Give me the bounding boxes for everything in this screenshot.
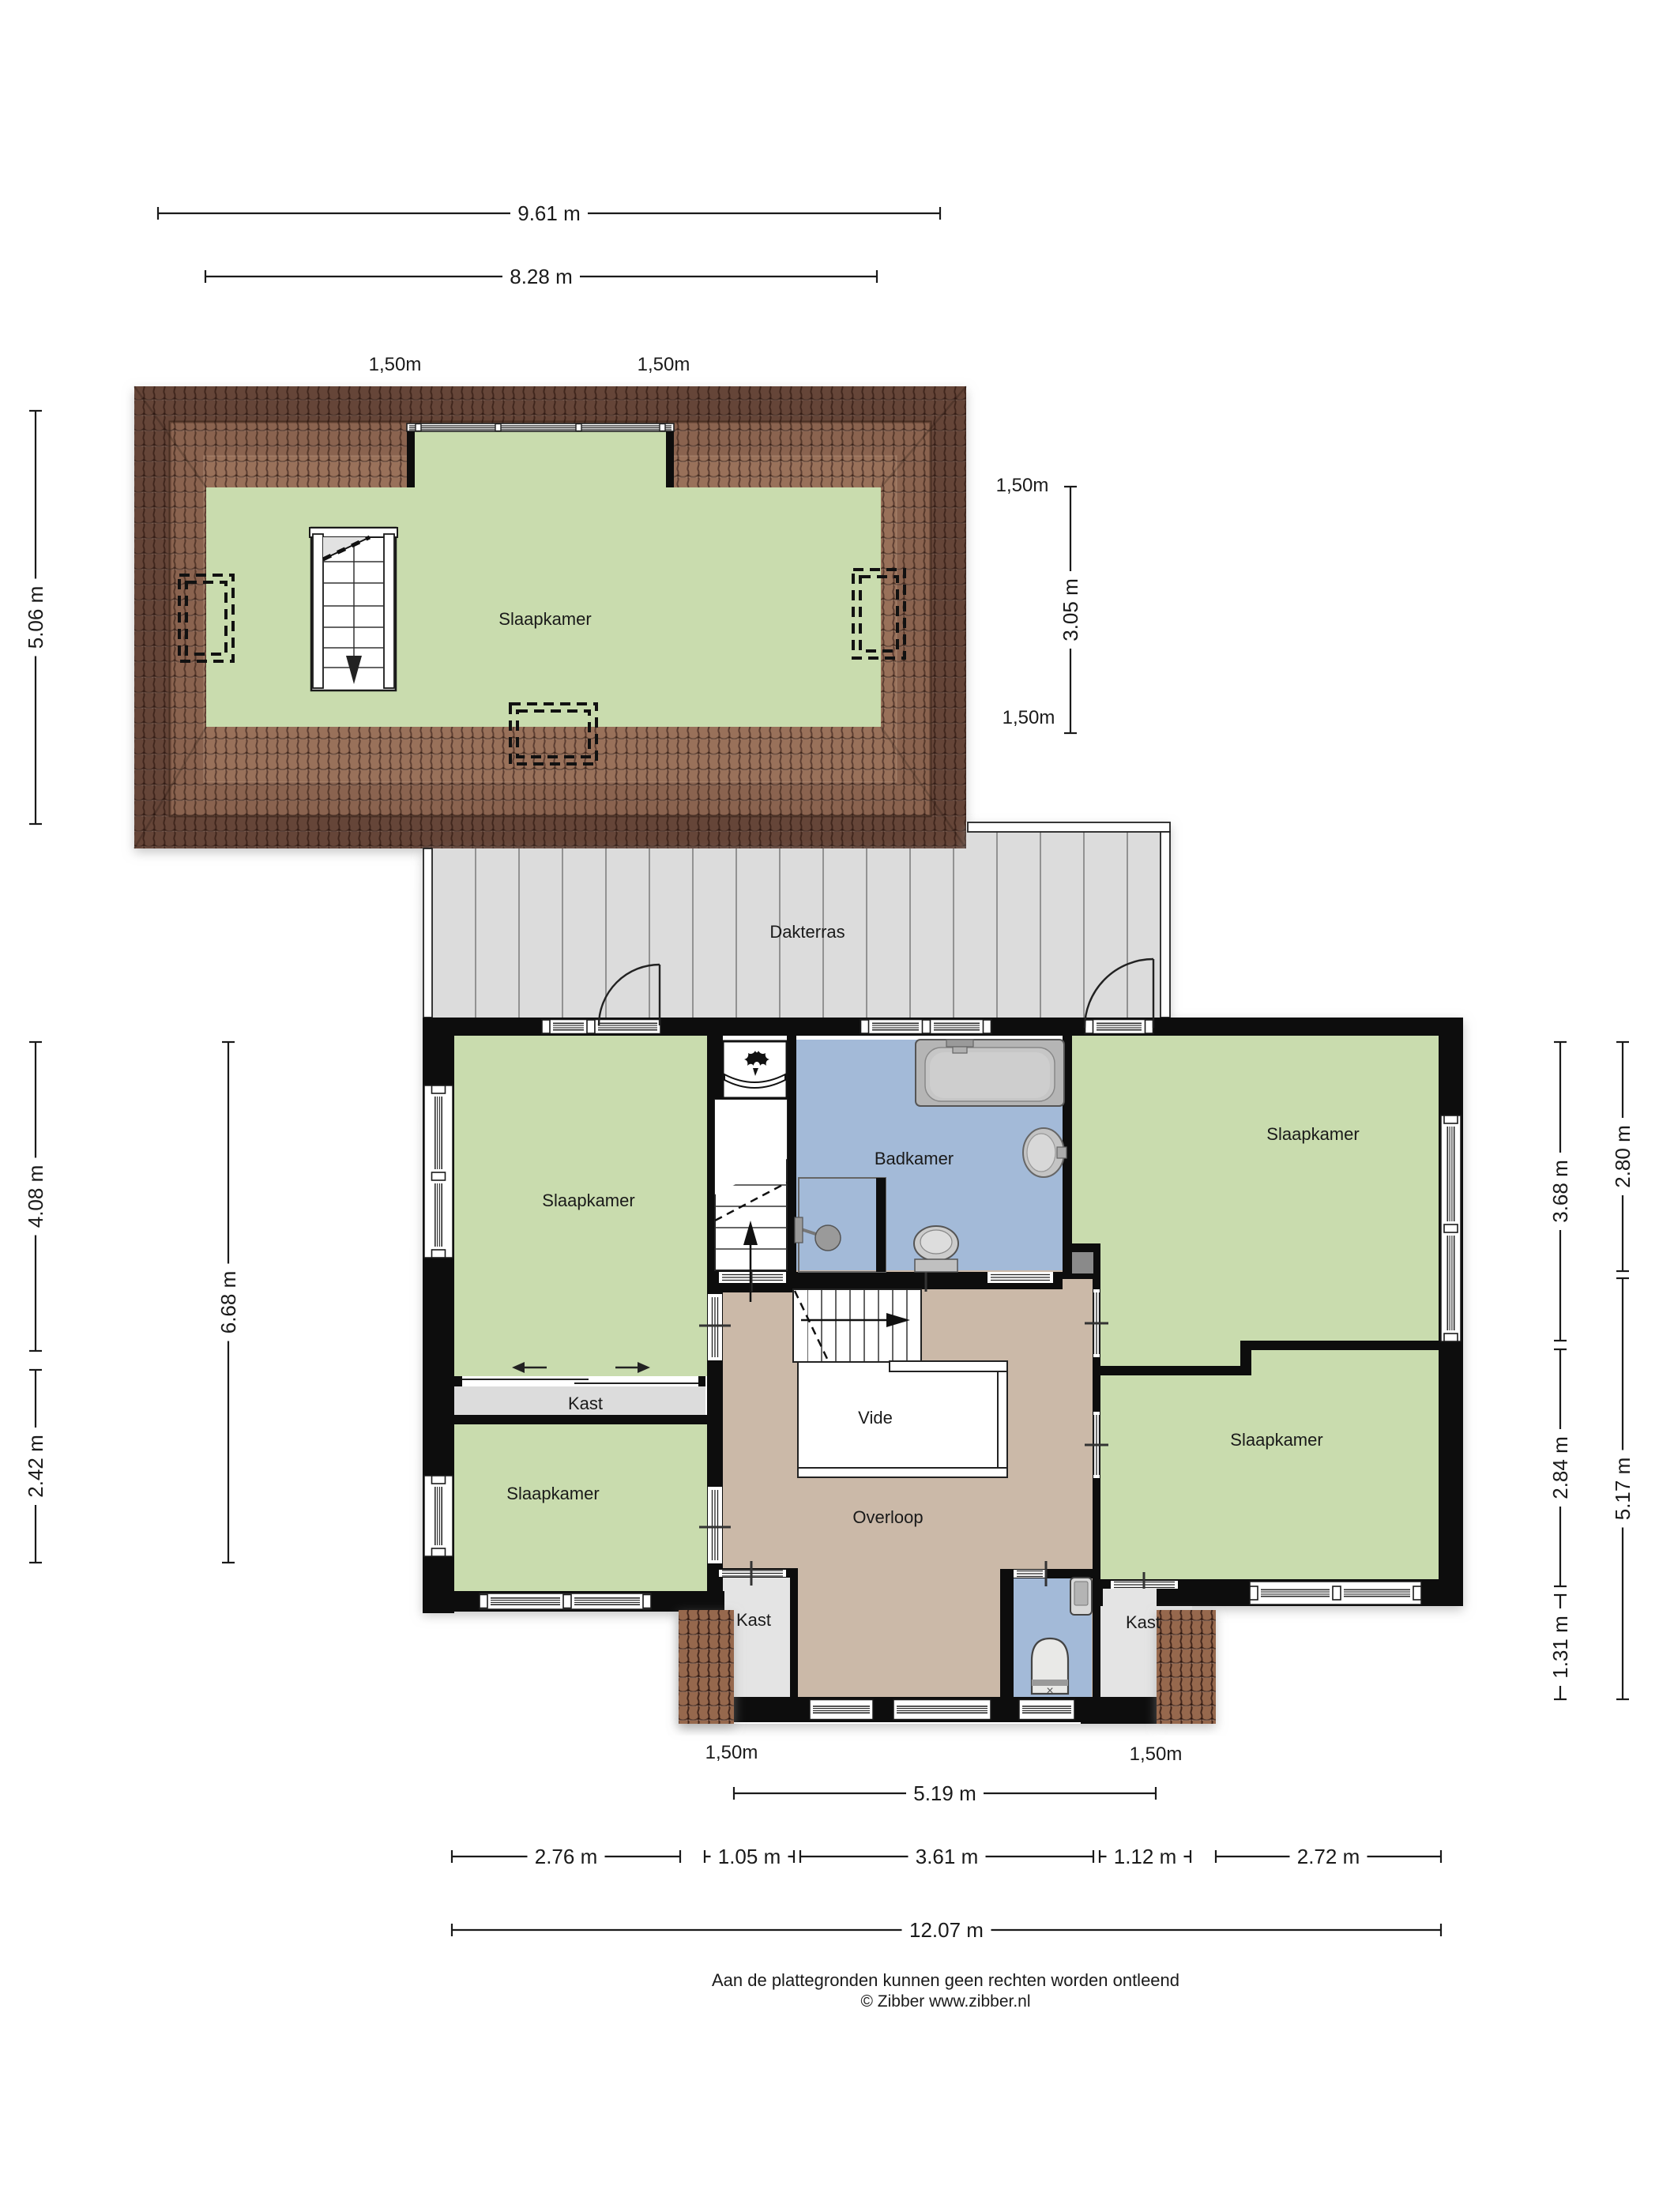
svg-text:Kast: Kast bbox=[1126, 1612, 1161, 1632]
svg-text:3.05 m: 3.05 m bbox=[1059, 578, 1082, 641]
svg-text:2.84 m: 2.84 m bbox=[1548, 1436, 1572, 1499]
svg-text:4.08 m: 4.08 m bbox=[24, 1165, 47, 1228]
svg-text:Slaapkamer: Slaapkamer bbox=[506, 1484, 599, 1503]
svg-text:Kast: Kast bbox=[568, 1394, 603, 1413]
svg-text:1,50m: 1,50m bbox=[638, 354, 690, 375]
svg-text:2.72 m: 2.72 m bbox=[1297, 1845, 1360, 1868]
svg-text:1,50m: 1,50m bbox=[1130, 1744, 1183, 1765]
svg-text:5.17 m: 5.17 m bbox=[1611, 1458, 1635, 1521]
svg-text:1,50m: 1,50m bbox=[369, 354, 422, 375]
svg-text:5.19 m: 5.19 m bbox=[913, 1781, 976, 1805]
svg-text:Overloop: Overloop bbox=[852, 1507, 923, 1527]
svg-text:1,50m: 1,50m bbox=[1003, 707, 1055, 728]
svg-text:1.31 m: 1.31 m bbox=[1548, 1616, 1572, 1679]
svg-text:2.76 m: 2.76 m bbox=[535, 1845, 598, 1868]
svg-text:Slaapkamer: Slaapkamer bbox=[1230, 1430, 1322, 1450]
svg-text:8.28 m: 8.28 m bbox=[510, 265, 573, 288]
svg-text:×: × bbox=[1046, 1684, 1053, 1698]
svg-text:1,50m: 1,50m bbox=[705, 1742, 758, 1763]
svg-text:Aan de plattegronden kunnen ge: Aan de plattegronden kunnen geen rechten… bbox=[712, 1970, 1179, 1990]
svg-text:Slaapkamer: Slaapkamer bbox=[498, 609, 591, 629]
svg-text:9.61 m: 9.61 m bbox=[517, 201, 581, 225]
svg-text:© Zibber www.zibber.nl: © Zibber www.zibber.nl bbox=[860, 1992, 1030, 2011]
svg-text:5.06 m: 5.06 m bbox=[24, 586, 47, 649]
svg-text:2.80 m: 2.80 m bbox=[1611, 1125, 1635, 1188]
svg-text:Slaapkamer: Slaapkamer bbox=[542, 1191, 634, 1210]
svg-text:12.07 m: 12.07 m bbox=[909, 1918, 984, 1942]
svg-text:2.42 m: 2.42 m bbox=[24, 1435, 47, 1498]
svg-text:6.68 m: 6.68 m bbox=[216, 1271, 240, 1334]
svg-text:3.68 m: 3.68 m bbox=[1548, 1160, 1572, 1223]
svg-text:1.12 m: 1.12 m bbox=[1114, 1845, 1177, 1868]
svg-text:Dakterras: Dakterras bbox=[769, 922, 845, 942]
svg-text:1,50m: 1,50m bbox=[996, 475, 1049, 496]
svg-text:Kast: Kast bbox=[736, 1610, 771, 1630]
svg-text:Vide: Vide bbox=[858, 1408, 893, 1428]
svg-text:3.61 m: 3.61 m bbox=[916, 1845, 979, 1868]
svg-text:Slaapkamer: Slaapkamer bbox=[1266, 1124, 1359, 1144]
svg-text:Badkamer: Badkamer bbox=[875, 1149, 954, 1168]
svg-text:1.05 m: 1.05 m bbox=[718, 1845, 781, 1868]
